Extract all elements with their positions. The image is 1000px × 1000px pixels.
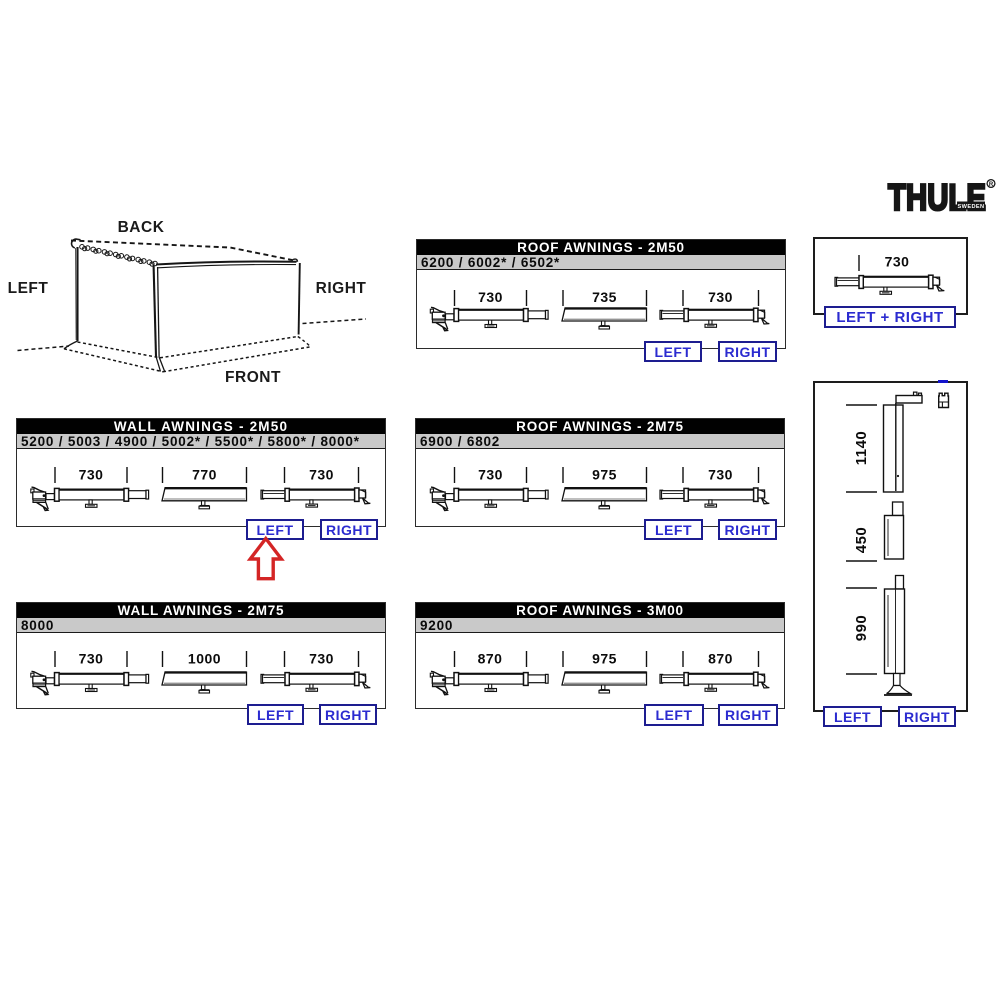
svg-text:LEFT: LEFT [8, 280, 49, 297]
svg-text:THULE: THULE [888, 177, 986, 218]
svg-text:FRONT: FRONT [225, 369, 281, 386]
svg-text:RIGHT: RIGHT [316, 280, 367, 297]
svg-text:SWEDEN: SWEDEN [958, 204, 985, 210]
svg-text:R: R [989, 182, 994, 188]
svg-text:BACK: BACK [118, 219, 165, 236]
